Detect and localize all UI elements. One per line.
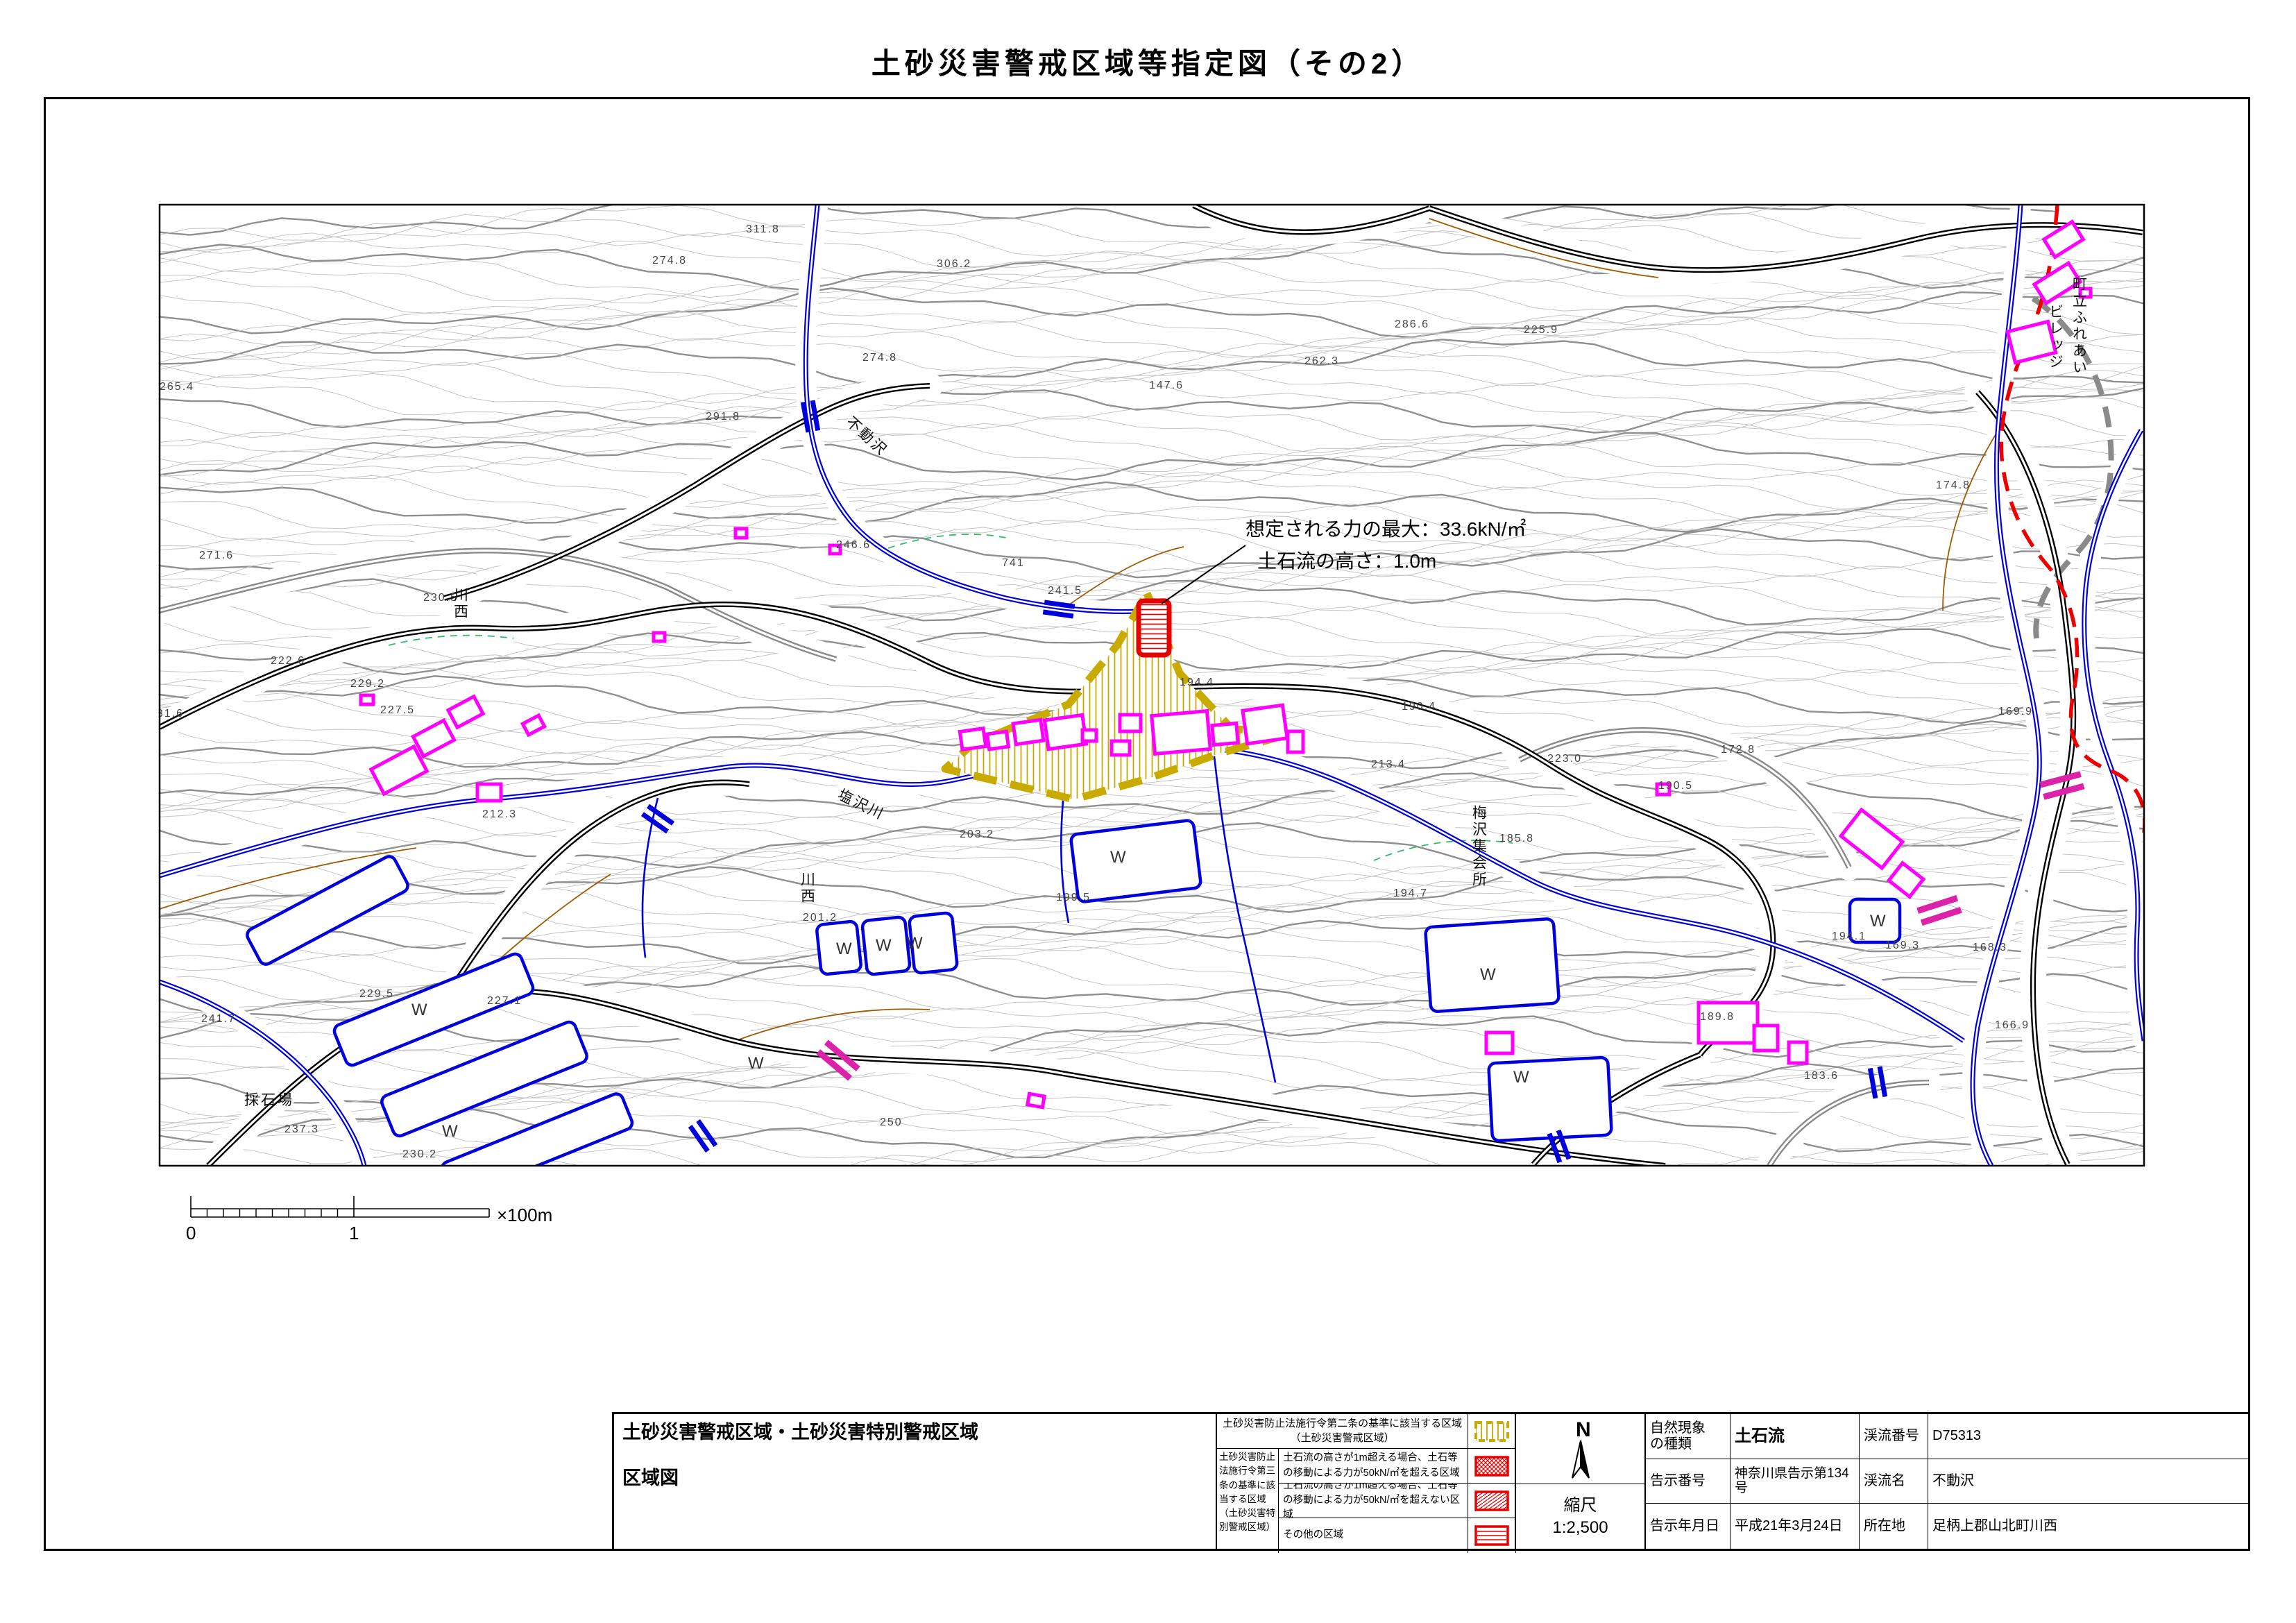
svg-text:N: N: [1576, 1418, 1591, 1441]
north-arrow: N: [1516, 1414, 1644, 1484]
spot-elevation-label: 241.7: [201, 1013, 236, 1025]
legend-swatch-other-zone: [1468, 1518, 1516, 1553]
spot-elevation-label: 169.9: [1998, 706, 2033, 717]
place-name-label: 採石場: [244, 1092, 294, 1108]
special-zone-cross-hatch-icon: [1473, 1454, 1511, 1478]
spot-elevation-label: 166.9: [1995, 1019, 2030, 1031]
spot-elevation-label: 190.4: [1402, 701, 1436, 713]
special-zone-diagonal-hatch-icon: [1473, 1489, 1511, 1513]
w-symbol: W: [836, 940, 852, 958]
spot-elevation-label: 212.3: [482, 808, 517, 820]
sheet-title-line1: 土砂災害警戒区域・土砂災害特別警戒区域: [622, 1421, 1207, 1443]
legend-swatch-special-over50: [1468, 1449, 1516, 1484]
special-warning-zone-hatch: [1139, 601, 1169, 655]
building: [1212, 724, 1238, 745]
building: [413, 720, 454, 756]
building: [1699, 1003, 1758, 1043]
spot-elevation-label: 203.2: [960, 829, 994, 840]
building: [1120, 715, 1141, 731]
building: [1288, 731, 1303, 752]
spot-elevation-label: 190.5: [1658, 780, 1693, 792]
building: [960, 729, 985, 749]
w-symbol: W: [1110, 848, 1126, 867]
legend-row3-text: 土石流の高さが1m超える場合、土石等の移動による力が50kN/㎡を超えない区域: [1279, 1484, 1468, 1518]
designation-data-table: 自然現象の種類 土石流 渓流番号 D75313 告示番号 神奈川県告示第134号…: [1646, 1414, 2248, 1549]
w-symbol: W: [442, 1122, 458, 1141]
building: [142, 698, 158, 711]
place-name-label: 町立ふれあい: [2071, 276, 2087, 376]
spot-elevation-label: 265.4: [160, 381, 194, 393]
spot-elevation-label: 174.8: [1936, 479, 1971, 491]
building: [522, 715, 544, 735]
row2-value2: 不動沢: [1928, 1459, 2248, 1504]
row3-value: 平成21年3月24日: [1730, 1504, 1860, 1549]
map-sheet-title-cell: 土砂災害警戒区域・土砂災害特別警戒区域 区域図: [614, 1414, 1217, 1549]
north-arrow-icon: N: [1556, 1417, 1605, 1481]
spot-elevation-label: 231.6: [149, 708, 184, 720]
building: [361, 695, 373, 704]
building: [448, 697, 483, 727]
spot-elevation-label: 274.8: [652, 255, 687, 266]
legend-row2-text: 土石流の高さが1m超える場合、土石等の移動による力が50kN/㎡を超える区域: [1279, 1449, 1468, 1484]
spot-elevation-label: 168.3: [1973, 942, 2007, 953]
map-info-table: 土砂災害警戒区域・土砂災害特別警戒区域 区域図 土砂災害防止法施行令第二条の基準…: [612, 1412, 2250, 1551]
building: [987, 731, 1009, 749]
spot-elevation-label: 194.4: [1180, 677, 1214, 688]
spot-elevation-label: 237.3: [284, 1123, 319, 1135]
scale-bar-unit: ×100m: [497, 1205, 552, 1225]
row2-value: 神奈川県告示第134号: [1730, 1459, 1860, 1504]
legend-row1-text: 土砂災害防止法施行令第二条の基準に該当する区域 （土砂災害警戒区域）: [1217, 1414, 1468, 1449]
spot-elevation-label: 271.6: [199, 550, 234, 561]
spot-elevation-label: 169.3: [1885, 940, 1920, 951]
spot-elevation-label: 306.2: [937, 258, 971, 270]
building: [1082, 730, 1096, 741]
building: [1789, 1042, 1807, 1063]
spot-elevation-label: 194.7: [1393, 887, 1428, 899]
place-name-label: 川西: [452, 587, 469, 620]
building: [1152, 711, 1210, 754]
spot-elevation-label: 227.5: [380, 704, 415, 716]
spot-elevation-label: 222.6: [271, 655, 305, 667]
building: [735, 529, 747, 538]
field-parcel: [1488, 1057, 1612, 1141]
annotation-line1: 想定される力の最大：33.6kN/㎡: [1245, 518, 1527, 540]
spot-elevation-label: 223.0: [1547, 753, 1582, 765]
w-symbol: W: [1513, 1068, 1529, 1087]
building: [477, 784, 501, 801]
w-symbol: W: [907, 934, 923, 953]
spot-elevation-label: 250: [880, 1116, 903, 1128]
spot-elevation-label: 741: [1002, 557, 1025, 569]
warning-zone-swatch-icon: [1473, 1420, 1511, 1443]
row3-value2: 足柄上郡山北町川西: [1928, 1504, 2248, 1549]
legend-group-label: 土砂災害防止法施行令第三条の基準に該当する区域（土砂災害特別警戒区域）: [1217, 1449, 1279, 1553]
spot-elevation-label: 274.8: [862, 352, 897, 364]
spot-elevation-label: 185.8: [1499, 833, 1534, 844]
place-name-label: 川西: [799, 872, 816, 905]
document-sheet: 土砂災害警戒区域等指定図（その2）: [0, 0, 2296, 1623]
legend-swatch-special-under50: [1468, 1484, 1516, 1518]
legend-swatch-warning-zone: [1468, 1414, 1516, 1449]
scale-bar-one: 1: [349, 1223, 359, 1243]
annotation-line2: 土石流の高さ：1.0m: [1257, 550, 1436, 572]
w-symbol: W: [1480, 965, 1496, 984]
w-symbol: W: [411, 1001, 427, 1019]
building: [654, 633, 665, 641]
building: [1028, 1094, 1044, 1107]
bridge-blue: [690, 1121, 716, 1151]
compass-and-scale: N 縮尺 1:2,500: [1516, 1414, 1646, 1549]
spot-elevation-label: 311.8: [746, 223, 780, 235]
field-parcel: [1071, 820, 1202, 903]
building: [1044, 715, 1086, 749]
scale-label: 縮尺: [1564, 1495, 1597, 1516]
spot-elevation-label: 189.8: [1700, 1011, 1735, 1023]
w-symbol: W: [1870, 912, 1886, 931]
row2-label2: 渓流名: [1860, 1459, 1928, 1504]
row1-value: 土石流: [1730, 1414, 1860, 1459]
spot-elevation-label: 230.2: [402, 1148, 437, 1160]
spot-elevation-label: 213.4: [1371, 758, 1406, 770]
legend: 土砂災害防止法施行令第二条の基準に該当する区域 （土砂災害警戒区域） 土砂災害防…: [1217, 1414, 1516, 1549]
spot-elevation-label: 227.1: [487, 995, 522, 1007]
row3-label: 告示年月日: [1646, 1504, 1730, 1549]
spot-elevation-label: 286.6: [1395, 318, 1429, 330]
map-scale: 縮尺 1:2,500: [1516, 1484, 1644, 1549]
scale-bar-zero: 0: [186, 1223, 196, 1243]
topographic-map: 265.4271.6274.8311.8306.2291.8274.8147.6…: [0, 0, 2296, 1623]
spot-elevation-label: 172.8: [1721, 744, 1755, 756]
spot-elevation-label: 194.1: [1832, 931, 1866, 942]
building: [1486, 1033, 1513, 1053]
spot-elevation-label: 225.9: [1524, 324, 1558, 336]
spot-elevation-label: 183.6: [1804, 1070, 1839, 1082]
spot-elevation-label: 246.6: [836, 539, 871, 551]
other-zone-lines-icon: [1473, 1524, 1511, 1547]
building: [1243, 705, 1287, 744]
scale-bar: 0 1 ×100m: [186, 1196, 552, 1243]
building: [1112, 741, 1130, 755]
scale-value: 1:2,500: [1553, 1517, 1608, 1538]
w-symbol: W: [748, 1054, 764, 1073]
row1-label: 自然現象の種類: [1646, 1414, 1730, 1459]
spot-elevation-label: 229.2: [350, 678, 385, 690]
spot-elevation-label: 201.2: [803, 912, 837, 924]
row2-label: 告示番号: [1646, 1459, 1730, 1504]
spot-elevation-label: 241.5: [1048, 585, 1082, 597]
row1-value2: D75313: [1928, 1414, 2248, 1459]
building: [1754, 1026, 1778, 1051]
building: [371, 747, 427, 794]
sheet-title-line2: 区域図: [622, 1467, 1207, 1489]
building: [1013, 720, 1044, 744]
w-symbol: W: [876, 936, 892, 955]
spot-elevation-label: 262.3: [1304, 355, 1339, 367]
spot-elevation-label: 229.5: [359, 988, 394, 1000]
row1-label2: 渓流番号: [1860, 1414, 1928, 1459]
legend-row4-text: その他の区域: [1279, 1518, 1468, 1553]
bridge-pink: [1918, 898, 1962, 923]
spot-elevation-label: 199.5: [1056, 892, 1091, 903]
place-name-label: ビレッジ: [2048, 304, 2064, 371]
spot-elevation-label: 147.6: [1149, 380, 1184, 391]
row3-label2: 所在地: [1860, 1504, 1928, 1549]
spot-elevation-label: 291.8: [706, 411, 740, 423]
place-name-label: 梅沢集会所: [1471, 805, 1488, 888]
